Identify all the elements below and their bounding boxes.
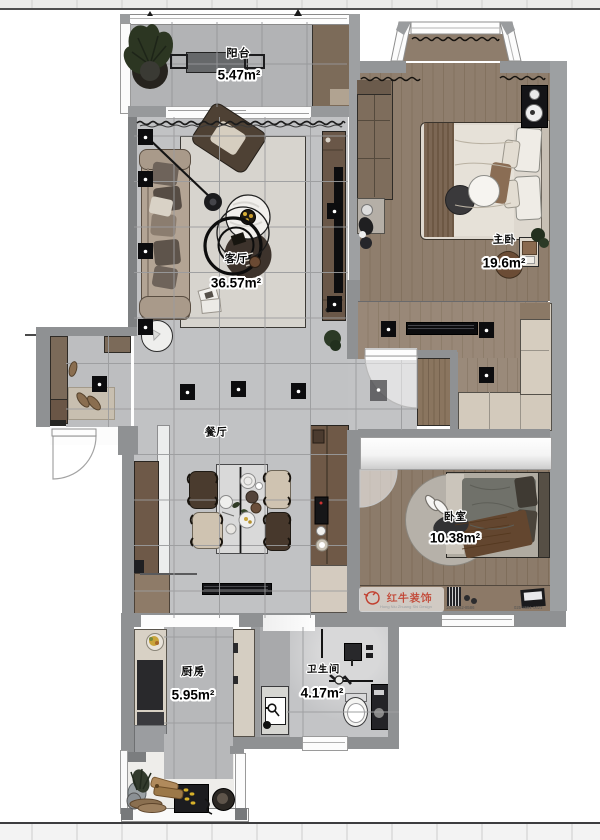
svg-text:025-8551-0621: 025-8551-0621 [514,605,543,610]
svg-text:150-5062-8586: 150-5062-8586 [446,605,475,610]
svg-text:Hong Niu Zhuang Shi Design: Hong Niu Zhuang Shi Design [380,604,432,609]
